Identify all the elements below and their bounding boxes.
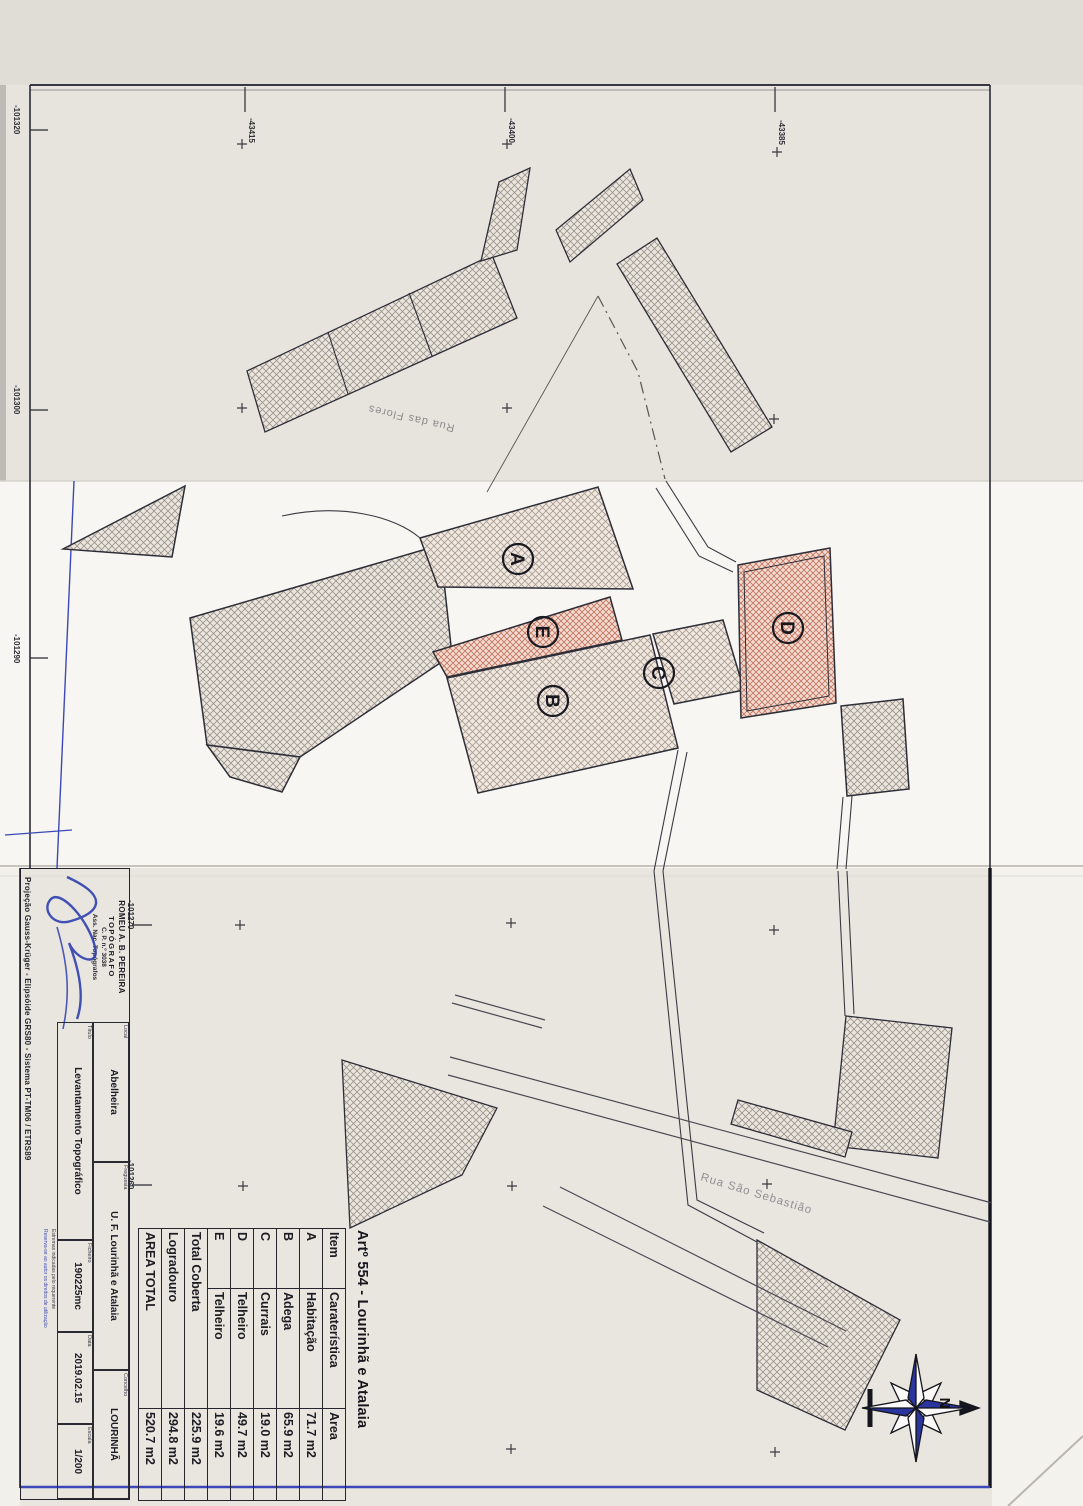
field-local-label: Local: [122, 1023, 129, 1161]
table-row-total-coberta: Total Coberta 225.9 m2: [185, 1229, 208, 1501]
marker-b-letter: B: [541, 694, 562, 708]
col-header-carateristica: Caraterística: [323, 1289, 346, 1409]
row-a-carateristica: Habitação: [300, 1289, 323, 1409]
areas-table-rotated-wrap: Artº 554 - Lourinhã e Atalaia Item Carat…: [128, 1228, 370, 1500]
stamp-association: Ass. Nac. Topógrafos: [90, 873, 98, 1021]
row-c-item: C: [254, 1229, 277, 1289]
coord-left-3: -101290: [12, 634, 21, 664]
stamp-role: TOPÓGRAFO: [107, 873, 116, 1021]
row-e-area: 19.6 m2: [208, 1409, 231, 1501]
field-escala-value: 1/200: [70, 1425, 86, 1498]
area-total-label: AREA TOTAL: [139, 1229, 162, 1409]
col-header-area: Area: [323, 1409, 346, 1501]
row-a-item: A: [300, 1229, 323, 1289]
marker-a-letter: A: [506, 552, 527, 566]
title-block: ROMEU A. B. PEREIRA TOPÓGRAFO C. P. n.º …: [20, 868, 130, 1500]
row-b-carateristica: Adega: [277, 1289, 300, 1409]
table-row-logradouro: Logradouro 294.8 m2: [162, 1229, 185, 1501]
table-row-area-total: AREA TOTAL 520.7 m2: [139, 1229, 162, 1501]
field-escala-label: Escala: [86, 1425, 93, 1498]
drawing-title: Artº 554 - Lourinhã e Atalaia: [346, 1228, 370, 1500]
marker-c-letter: C: [647, 666, 668, 680]
row-a-area: 71.7 m2: [300, 1409, 323, 1501]
title-block-rotated-wrap: ROMEU A. B. PEREIRA TOPÓGRAFO C. P. n.º …: [20, 868, 130, 1500]
field-data-label: Data: [86, 1333, 93, 1423]
scanned-survey-page: -43415 -43400 -43385 -101320 -101300 -10…: [0, 0, 1083, 1506]
field-titulo-value: Levantamento Topográfico: [70, 1023, 86, 1239]
paper-right-margin: [992, 868, 1083, 1506]
field-local: Local Abelheira: [93, 1022, 129, 1162]
paper-top-margin: [0, 0, 1083, 85]
paper-left-margin: [0, 868, 20, 1506]
stamp-name: ROMEU A. B. PEREIRA: [116, 873, 126, 1021]
coord-left-1: -101320: [12, 105, 21, 135]
field-local-value: Abelheira: [106, 1023, 122, 1161]
fine-print-line-2: Reserva-se ao autor os direitos de utili…: [41, 1229, 49, 1489]
field-concelho: Concelho LOURINHÃ: [93, 1370, 129, 1499]
field-data-value: 2019.02.15: [70, 1333, 86, 1423]
scan-edge-shadow: [0, 85, 6, 481]
table-row-b: B Adega 65.9 m2: [277, 1229, 300, 1501]
row-c-carateristica: Currais: [254, 1289, 277, 1409]
areas-table: Item Caraterística Area A Habitação 71.7…: [138, 1228, 346, 1501]
table-row-c: C Currais 19.0 m2: [254, 1229, 277, 1501]
fine-print-line-1: Estremas indicadas pelo requerente: [49, 1229, 57, 1489]
field-freguesia: Freguesia U. F. Lourinhã e Atalaia: [93, 1162, 129, 1370]
marker-d-letter: D: [776, 621, 797, 635]
field-titulo-label: Título: [86, 1023, 93, 1239]
field-data: Data 2019.02.15: [57, 1332, 93, 1424]
field-ficheiro-value: 190225mc: [70, 1241, 86, 1331]
col-header-item: Item: [323, 1229, 346, 1289]
field-concelho-value: LOURINHÃ: [106, 1371, 122, 1498]
neighbor-square-se: [841, 699, 909, 796]
field-concelho-label: Concelho: [122, 1371, 129, 1498]
fine-print: Estremas indicadas pelo requerente Reser…: [41, 1229, 56, 1489]
logradouro-area: 294.8 m2: [162, 1409, 185, 1501]
total-coberta-area: 225.9 m2: [185, 1409, 208, 1501]
logradouro-label: Logradouro: [162, 1229, 185, 1409]
coord-top-2: -43400: [507, 118, 516, 143]
field-freguesia-label: Freguesia: [122, 1163, 129, 1369]
row-e-item: E: [208, 1229, 231, 1289]
row-d-area: 49.7 m2: [231, 1409, 254, 1501]
table-row-d: D Telheiro 49.7 m2: [231, 1229, 254, 1501]
stamp-license: C. P. n.º 3038: [99, 873, 107, 1021]
marker-e-letter: E: [531, 626, 552, 639]
coord-top-1: -43415: [247, 118, 256, 143]
field-escala: Escala 1/200: [57, 1424, 93, 1499]
coord-left-2: -101300: [12, 385, 21, 415]
title-block-fields: Local Abelheira Freguesia U. F. Lourinhã…: [57, 1022, 129, 1499]
field-titulo: Título Levantamento Topográfico: [57, 1022, 93, 1240]
field-ficheiro: Ficheiro 190225mc: [57, 1240, 93, 1332]
row-c-area: 19.0 m2: [254, 1409, 277, 1501]
field-freguesia-value: U. F. Lourinhã e Atalaia: [106, 1163, 122, 1369]
row-d-item: D: [231, 1229, 254, 1289]
row-b-item: B: [277, 1229, 300, 1289]
surveyor-stamp: ROMEU A. B. PEREIRA TOPÓGRAFO C. P. n.º …: [56, 873, 126, 1021]
row-b-area: 65.9 m2: [277, 1409, 300, 1501]
table-row-a: A Habitação 71.7 m2: [300, 1229, 323, 1501]
row-d-carateristica: Telheiro: [231, 1289, 254, 1409]
area-total-area: 520.7 m2: [139, 1409, 162, 1501]
table-row-e: E Telheiro 19.6 m2: [208, 1229, 231, 1501]
projection-note: Projeção Gauss-Krüger - Elipsóide GRS80 …: [23, 877, 32, 1161]
total-coberta-label: Total Coberta: [185, 1229, 208, 1409]
compass-north-label: N: [936, 1398, 953, 1409]
areas-header-row: Item Caraterística Area: [323, 1229, 346, 1501]
field-ficheiro-label: Ficheiro: [86, 1241, 93, 1331]
coord-top-3: -43385: [777, 120, 786, 145]
row-e-carateristica: Telheiro: [208, 1289, 231, 1409]
